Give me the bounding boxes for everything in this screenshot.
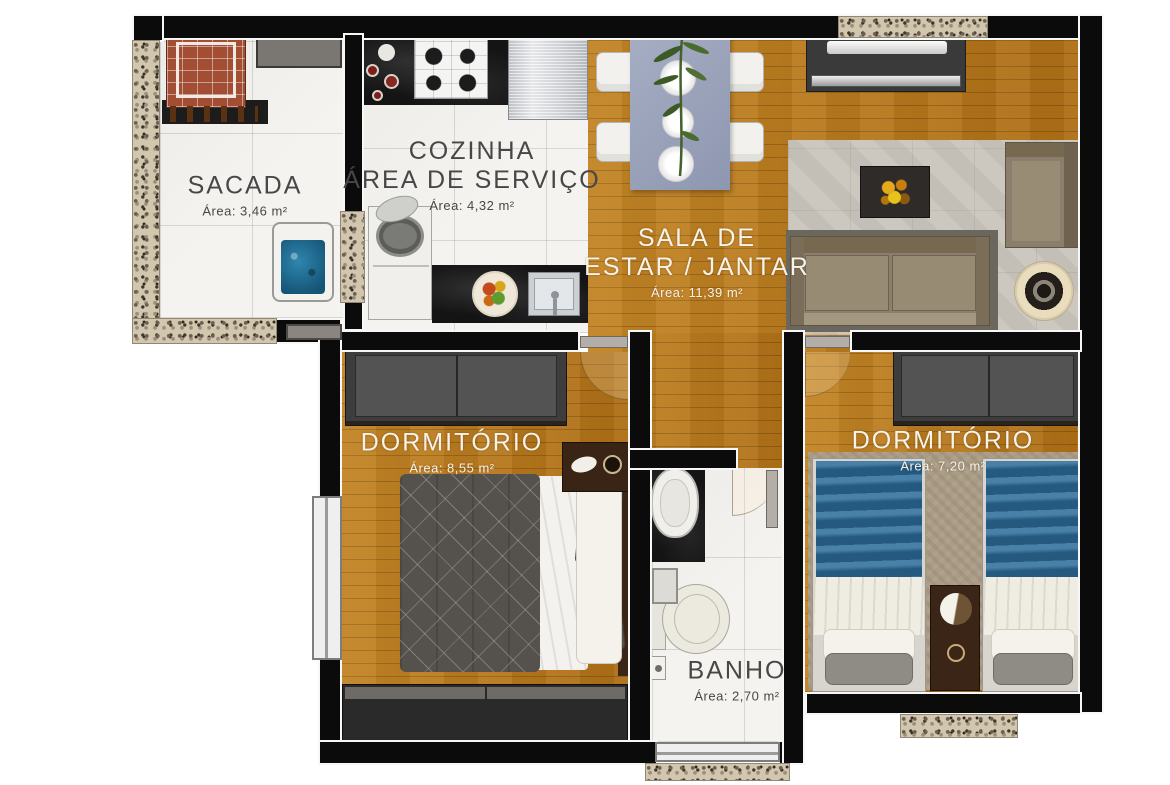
room-label-banho: BANHO Área: 2,70 m² bbox=[688, 657, 787, 704]
room-label-sala: SALA DE ESTAR / JANTAR Área: 11,39 m² bbox=[584, 224, 810, 300]
single-bed-duvet bbox=[986, 461, 1080, 583]
bed-pillow-base bbox=[576, 480, 622, 664]
single-bed-blanket bbox=[984, 577, 1082, 635]
bathroom-window-sill bbox=[645, 763, 790, 781]
toilet-paper-icon bbox=[650, 656, 666, 680]
decor-bowl-red2 bbox=[384, 74, 399, 89]
wall-bedroom2-bottom bbox=[805, 692, 1082, 715]
bedroom2-window-sill bbox=[900, 714, 1018, 738]
round-side-table bbox=[1015, 262, 1073, 320]
barbecue-grill bbox=[166, 32, 246, 108]
decor-bowl-red1 bbox=[366, 64, 379, 77]
nightstand-dish bbox=[947, 644, 965, 662]
soap-tray bbox=[652, 568, 678, 604]
double-bed bbox=[400, 474, 630, 672]
bedroom1-window bbox=[312, 496, 342, 660]
wall-corner-topleft bbox=[132, 14, 164, 42]
single-bed-duvet bbox=[816, 461, 922, 583]
single-bed bbox=[812, 458, 926, 692]
washing-machine-icon bbox=[368, 206, 432, 320]
wardrobe-low bbox=[342, 684, 628, 742]
coffee-table bbox=[860, 166, 930, 218]
room-label-dormitorio1: DORMITÓRIO Área: 8,55 m² bbox=[361, 429, 544, 476]
fruit-plate bbox=[472, 271, 518, 317]
balcony-edge-left bbox=[132, 40, 160, 320]
kitchen-sink-icon bbox=[528, 272, 580, 316]
wall-bottom-left bbox=[318, 740, 658, 765]
armchair bbox=[1005, 142, 1081, 248]
flower-decor bbox=[877, 175, 915, 211]
bedroom2-door bbox=[805, 336, 850, 348]
laundry-tub bbox=[272, 222, 334, 302]
room-label-cozinha: COZINHA ÁREA DE SERVIÇO Área: 4,32 m² bbox=[343, 137, 600, 213]
wall-bedroom1-top bbox=[318, 330, 580, 352]
balcony-edge-bottom bbox=[132, 318, 277, 344]
sofa bbox=[790, 236, 990, 326]
room-label-sacada: SACADA Área: 3,46 m² bbox=[188, 172, 303, 219]
bed-duvet bbox=[400, 474, 540, 672]
bathroom-door bbox=[766, 470, 778, 528]
room-label-dormitorio2: DORMITÓRIO Área: 7,20 m² bbox=[852, 427, 1035, 474]
single-bed-pillow-gray bbox=[993, 653, 1073, 685]
bathroom-window bbox=[655, 742, 780, 762]
single-bed bbox=[982, 458, 1084, 692]
nightstand-lamp bbox=[940, 593, 972, 625]
centerpiece-branch-icon bbox=[640, 32, 720, 182]
floor-plan: SACADA Área: 3,46 m² COZINHA ÁREA DE SER… bbox=[0, 0, 1170, 785]
hall-console bbox=[562, 442, 630, 492]
fridge-icon bbox=[508, 35, 588, 120]
single-bed-blanket bbox=[814, 577, 924, 635]
wall-hall-left bbox=[628, 330, 652, 765]
console-dish bbox=[570, 454, 599, 475]
wall-bathroom-top bbox=[628, 448, 738, 470]
decor-bowl-white bbox=[378, 44, 395, 61]
stove-icon bbox=[414, 39, 488, 99]
wall-bedroom1-left-upper bbox=[318, 330, 342, 498]
wall-bedroom2-top bbox=[850, 330, 1082, 352]
wall-sacada-kitchen-low bbox=[343, 301, 364, 331]
bedroom1-door bbox=[580, 336, 628, 348]
grill-legs bbox=[170, 106, 258, 122]
passthrough-counter bbox=[340, 211, 365, 303]
tv-screen bbox=[827, 41, 947, 54]
console-candle bbox=[603, 455, 622, 474]
wall-shelf bbox=[286, 324, 342, 340]
nightstand bbox=[930, 585, 980, 691]
living-window-sill bbox=[838, 16, 988, 38]
wall-right bbox=[1078, 14, 1104, 714]
decor-bowl-red3 bbox=[372, 90, 383, 101]
single-bed-pillow-gray bbox=[825, 653, 913, 685]
bath-sink-icon bbox=[651, 468, 699, 538]
